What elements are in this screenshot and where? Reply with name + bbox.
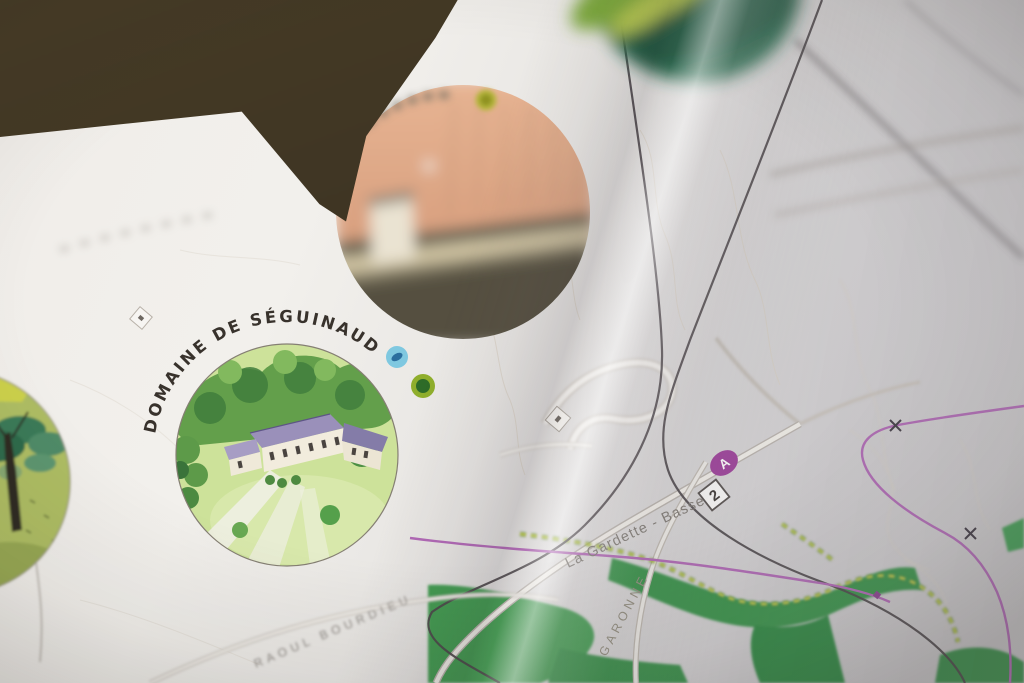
park-polygon [1002, 518, 1024, 552]
water-badge-icon [386, 346, 408, 368]
main-road-dark [663, 0, 965, 683]
photo-of-folded-map: DOMAINE DE SÉGUINAUD RAOUL BOURDIEU La G… [0, 0, 1024, 683]
interchange-roads [500, 338, 920, 455]
route-x-marker [890, 420, 976, 539]
blurred-area-name [60, 214, 215, 250]
activity-badge-icon [476, 90, 497, 111]
poi-circle-left [0, 360, 70, 662]
poi-circle-seguinaud: DOMAINE DE SÉGUINAUD [140, 307, 435, 580]
poi-circle-topright [558, 0, 809, 84]
park-polygon [548, 648, 688, 683]
nature-badge-icon [411, 374, 435, 398]
